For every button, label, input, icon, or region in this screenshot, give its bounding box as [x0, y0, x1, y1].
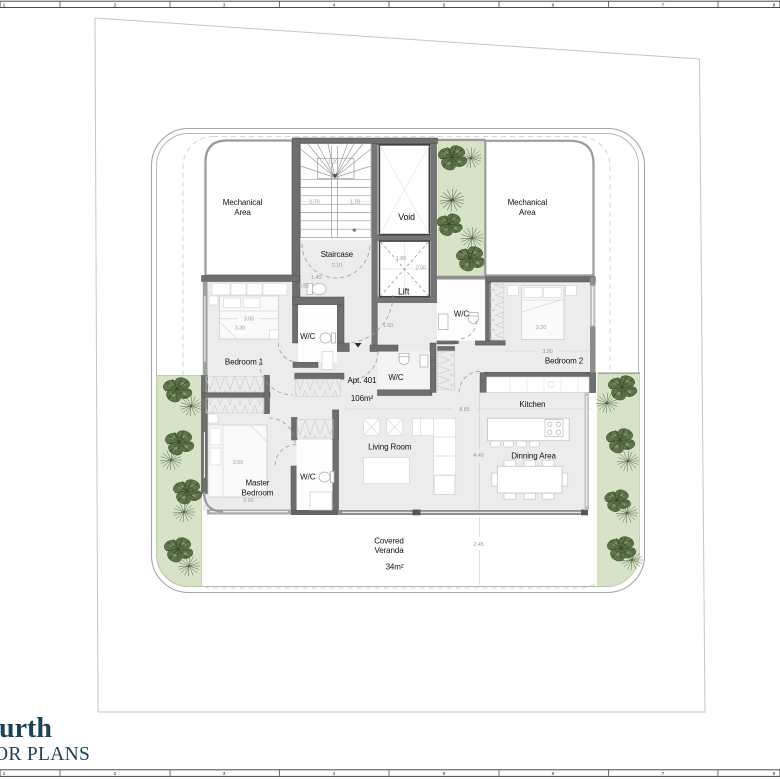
svg-text:Mechanical: Mechanical: [223, 198, 263, 207]
svg-text:Bedroom 1: Bedroom 1: [225, 358, 264, 367]
svg-text:1.70: 1.70: [309, 199, 319, 205]
svg-text:1.70: 1.70: [350, 199, 360, 205]
svg-text:4.40: 4.40: [473, 453, 483, 459]
svg-text:106m²: 106m²: [351, 394, 374, 403]
svg-text:3.00: 3.00: [243, 498, 253, 504]
svg-text:7: 7: [662, 771, 665, 777]
svg-text:W/C: W/C: [388, 373, 404, 382]
svg-text:2.10: 2.10: [332, 263, 342, 269]
svg-text:Bedroom 2: Bedroom 2: [545, 357, 584, 366]
svg-text:2.00: 2.00: [416, 266, 426, 272]
svg-text:Veranda: Veranda: [374, 546, 404, 555]
svg-text:2: 2: [114, 771, 117, 777]
svg-text:1.20: 1.20: [328, 160, 338, 166]
svg-text:Apt. 401: Apt. 401: [347, 376, 377, 385]
svg-text:Kitchen: Kitchen: [519, 400, 545, 409]
svg-text:1.50: 1.50: [383, 323, 393, 329]
svg-text:Living Room: Living Room: [368, 443, 412, 452]
svg-text:2: 2: [114, 2, 117, 8]
svg-text:8: 8: [773, 2, 776, 8]
svg-text:Master: Master: [245, 479, 269, 488]
svg-text:Void: Void: [398, 212, 415, 222]
svg-text:Lift: Lift: [398, 287, 410, 297]
svg-text:W/C: W/C: [300, 473, 316, 482]
svg-text:3.20: 3.20: [536, 325, 546, 331]
svg-text:8: 8: [773, 771, 776, 777]
svg-text:1: 1: [3, 771, 6, 777]
svg-text:Mechanical: Mechanical: [508, 198, 548, 207]
svg-text:Staircase: Staircase: [321, 250, 354, 259]
svg-text:2.45: 2.45: [473, 542, 483, 548]
svg-text:6: 6: [552, 771, 555, 777]
svg-text:1.45: 1.45: [311, 275, 321, 281]
svg-text:7: 7: [662, 2, 665, 8]
svg-text:Dinning Area: Dinning Area: [511, 452, 556, 461]
svg-text:34m²: 34m²: [386, 563, 404, 572]
svg-text:0.85: 0.85: [299, 284, 309, 290]
svg-text:8.85: 8.85: [459, 407, 469, 413]
svg-text:OR PLANS: OR PLANS: [0, 744, 90, 765]
svg-text:Area: Area: [519, 208, 536, 217]
svg-text:Bedroom: Bedroom: [242, 489, 274, 498]
svg-text:3.00: 3.00: [244, 317, 254, 323]
svg-text:5: 5: [443, 771, 446, 777]
svg-text:3.00: 3.00: [542, 349, 552, 355]
svg-text:Covered: Covered: [374, 537, 404, 546]
svg-text:3: 3: [223, 771, 226, 777]
svg-text:1.80: 1.80: [396, 256, 406, 262]
svg-text:3.50: 3.50: [233, 460, 243, 466]
svg-text:4: 4: [333, 771, 336, 777]
svg-text:6: 6: [552, 2, 555, 8]
svg-text:1: 1: [3, 2, 6, 8]
svg-text:4: 4: [333, 2, 336, 8]
svg-text:5: 5: [443, 2, 446, 8]
svg-text:3.30: 3.30: [235, 326, 245, 332]
svg-text:Area: Area: [234, 208, 251, 217]
svg-text:urth: urth: [0, 713, 52, 744]
svg-text:W/C: W/C: [454, 310, 470, 319]
svg-text:3: 3: [223, 2, 226, 8]
svg-text:W/C: W/C: [300, 332, 316, 341]
